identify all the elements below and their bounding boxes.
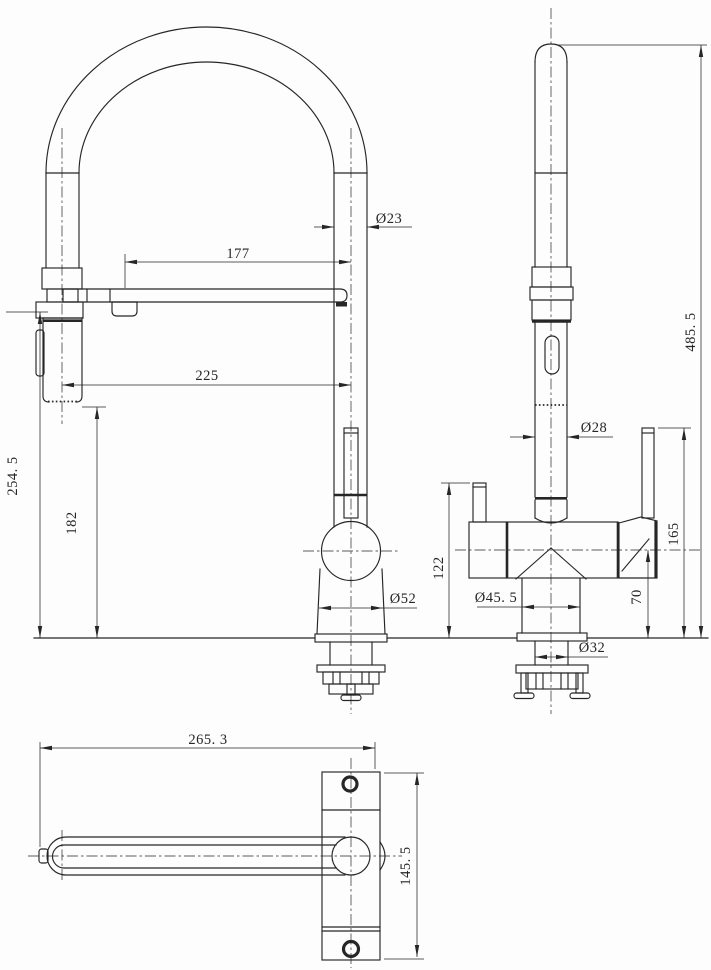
dimension-spray-clearance: 182 bbox=[64, 407, 106, 638]
dim-label-plan-total-length: 265. 3 bbox=[188, 732, 227, 748]
dim-label-handle-base-height: 70 bbox=[629, 589, 645, 605]
dim-label-shank-dia: Ø32 bbox=[579, 640, 605, 656]
dim-label-right-handle-height: 165 bbox=[666, 522, 682, 545]
dimension-lower-body-dia: Ø45. 5 bbox=[475, 590, 580, 607]
dimension-spout-tube-dia: Ø23 bbox=[314, 211, 412, 227]
dim-label-body-dia: Ø52 bbox=[390, 591, 416, 607]
handle-base bbox=[619, 517, 657, 578]
dimension-plan-total-length: 265. 3 bbox=[40, 732, 375, 847]
dimensions: Ø23 177 225 254. 5 182 Ø52 bbox=[5, 45, 707, 959]
left-handle bbox=[473, 483, 486, 522]
base-flange-side bbox=[517, 633, 587, 641]
dimension-right-handle-height: 165 bbox=[658, 428, 691, 638]
dim-label-plan-body-length: 145. 5 bbox=[398, 846, 414, 885]
plan-body bbox=[322, 772, 385, 960]
spout-arm bbox=[63, 289, 347, 316]
dimension-upper-reach: 177 bbox=[125, 246, 351, 288]
dimension-spray-reach: 225 bbox=[62, 368, 351, 385]
hose-nipple bbox=[112, 302, 137, 316]
technical-drawing-canvas: Ø23 177 225 254. 5 182 Ø52 bbox=[0, 0, 711, 970]
spout-spring-arc bbox=[46, 27, 367, 173]
dimension-riser-dia: Ø28 bbox=[510, 420, 613, 437]
valve-body-side bbox=[469, 517, 657, 633]
dim-label-spout-tube-dia: Ø23 bbox=[376, 211, 402, 227]
dim-label-spray-clearance: 182 bbox=[64, 511, 80, 534]
dimension-handle-base-height: 70 bbox=[629, 550, 648, 638]
dim-label-upper-reach: 177 bbox=[226, 246, 249, 262]
dimension-plan-body-length: 145. 5 bbox=[384, 773, 424, 959]
spout-slot bbox=[545, 336, 559, 374]
side-centerlines bbox=[455, 8, 702, 714]
dim-label-left-handle-height: 122 bbox=[431, 556, 447, 579]
riser-tube-side bbox=[530, 44, 573, 523]
dimension-spray-top-height: 254. 5 bbox=[5, 312, 48, 638]
riser-tube-front bbox=[334, 173, 367, 527]
dimension-left-handle-height: 122 bbox=[431, 483, 470, 638]
dim-label-spray-top-height: 254. 5 bbox=[5, 456, 21, 495]
dimension-body-dia: Ø52 bbox=[319, 591, 417, 608]
spray-hose-drop bbox=[36, 173, 83, 318]
dim-label-total-height: 485. 5 bbox=[683, 312, 699, 351]
right-handle bbox=[642, 428, 654, 518]
front-centerlines bbox=[62, 128, 399, 714]
screw-hole-top bbox=[343, 777, 357, 791]
top-view bbox=[28, 758, 402, 968]
dimension-shank-dia: Ø32 bbox=[535, 640, 608, 657]
dim-label-lower-body-dia: Ø45. 5 bbox=[475, 590, 517, 606]
faucet-orthographic-drawing: Ø23 177 225 254. 5 182 Ø52 bbox=[0, 0, 711, 970]
dim-label-riser-dia: Ø28 bbox=[581, 420, 607, 436]
dim-label-spray-reach: 225 bbox=[195, 368, 218, 384]
side-view bbox=[455, 8, 702, 714]
dimension-total-height: 485. 5 bbox=[558, 45, 707, 638]
spray-head bbox=[36, 318, 82, 402]
